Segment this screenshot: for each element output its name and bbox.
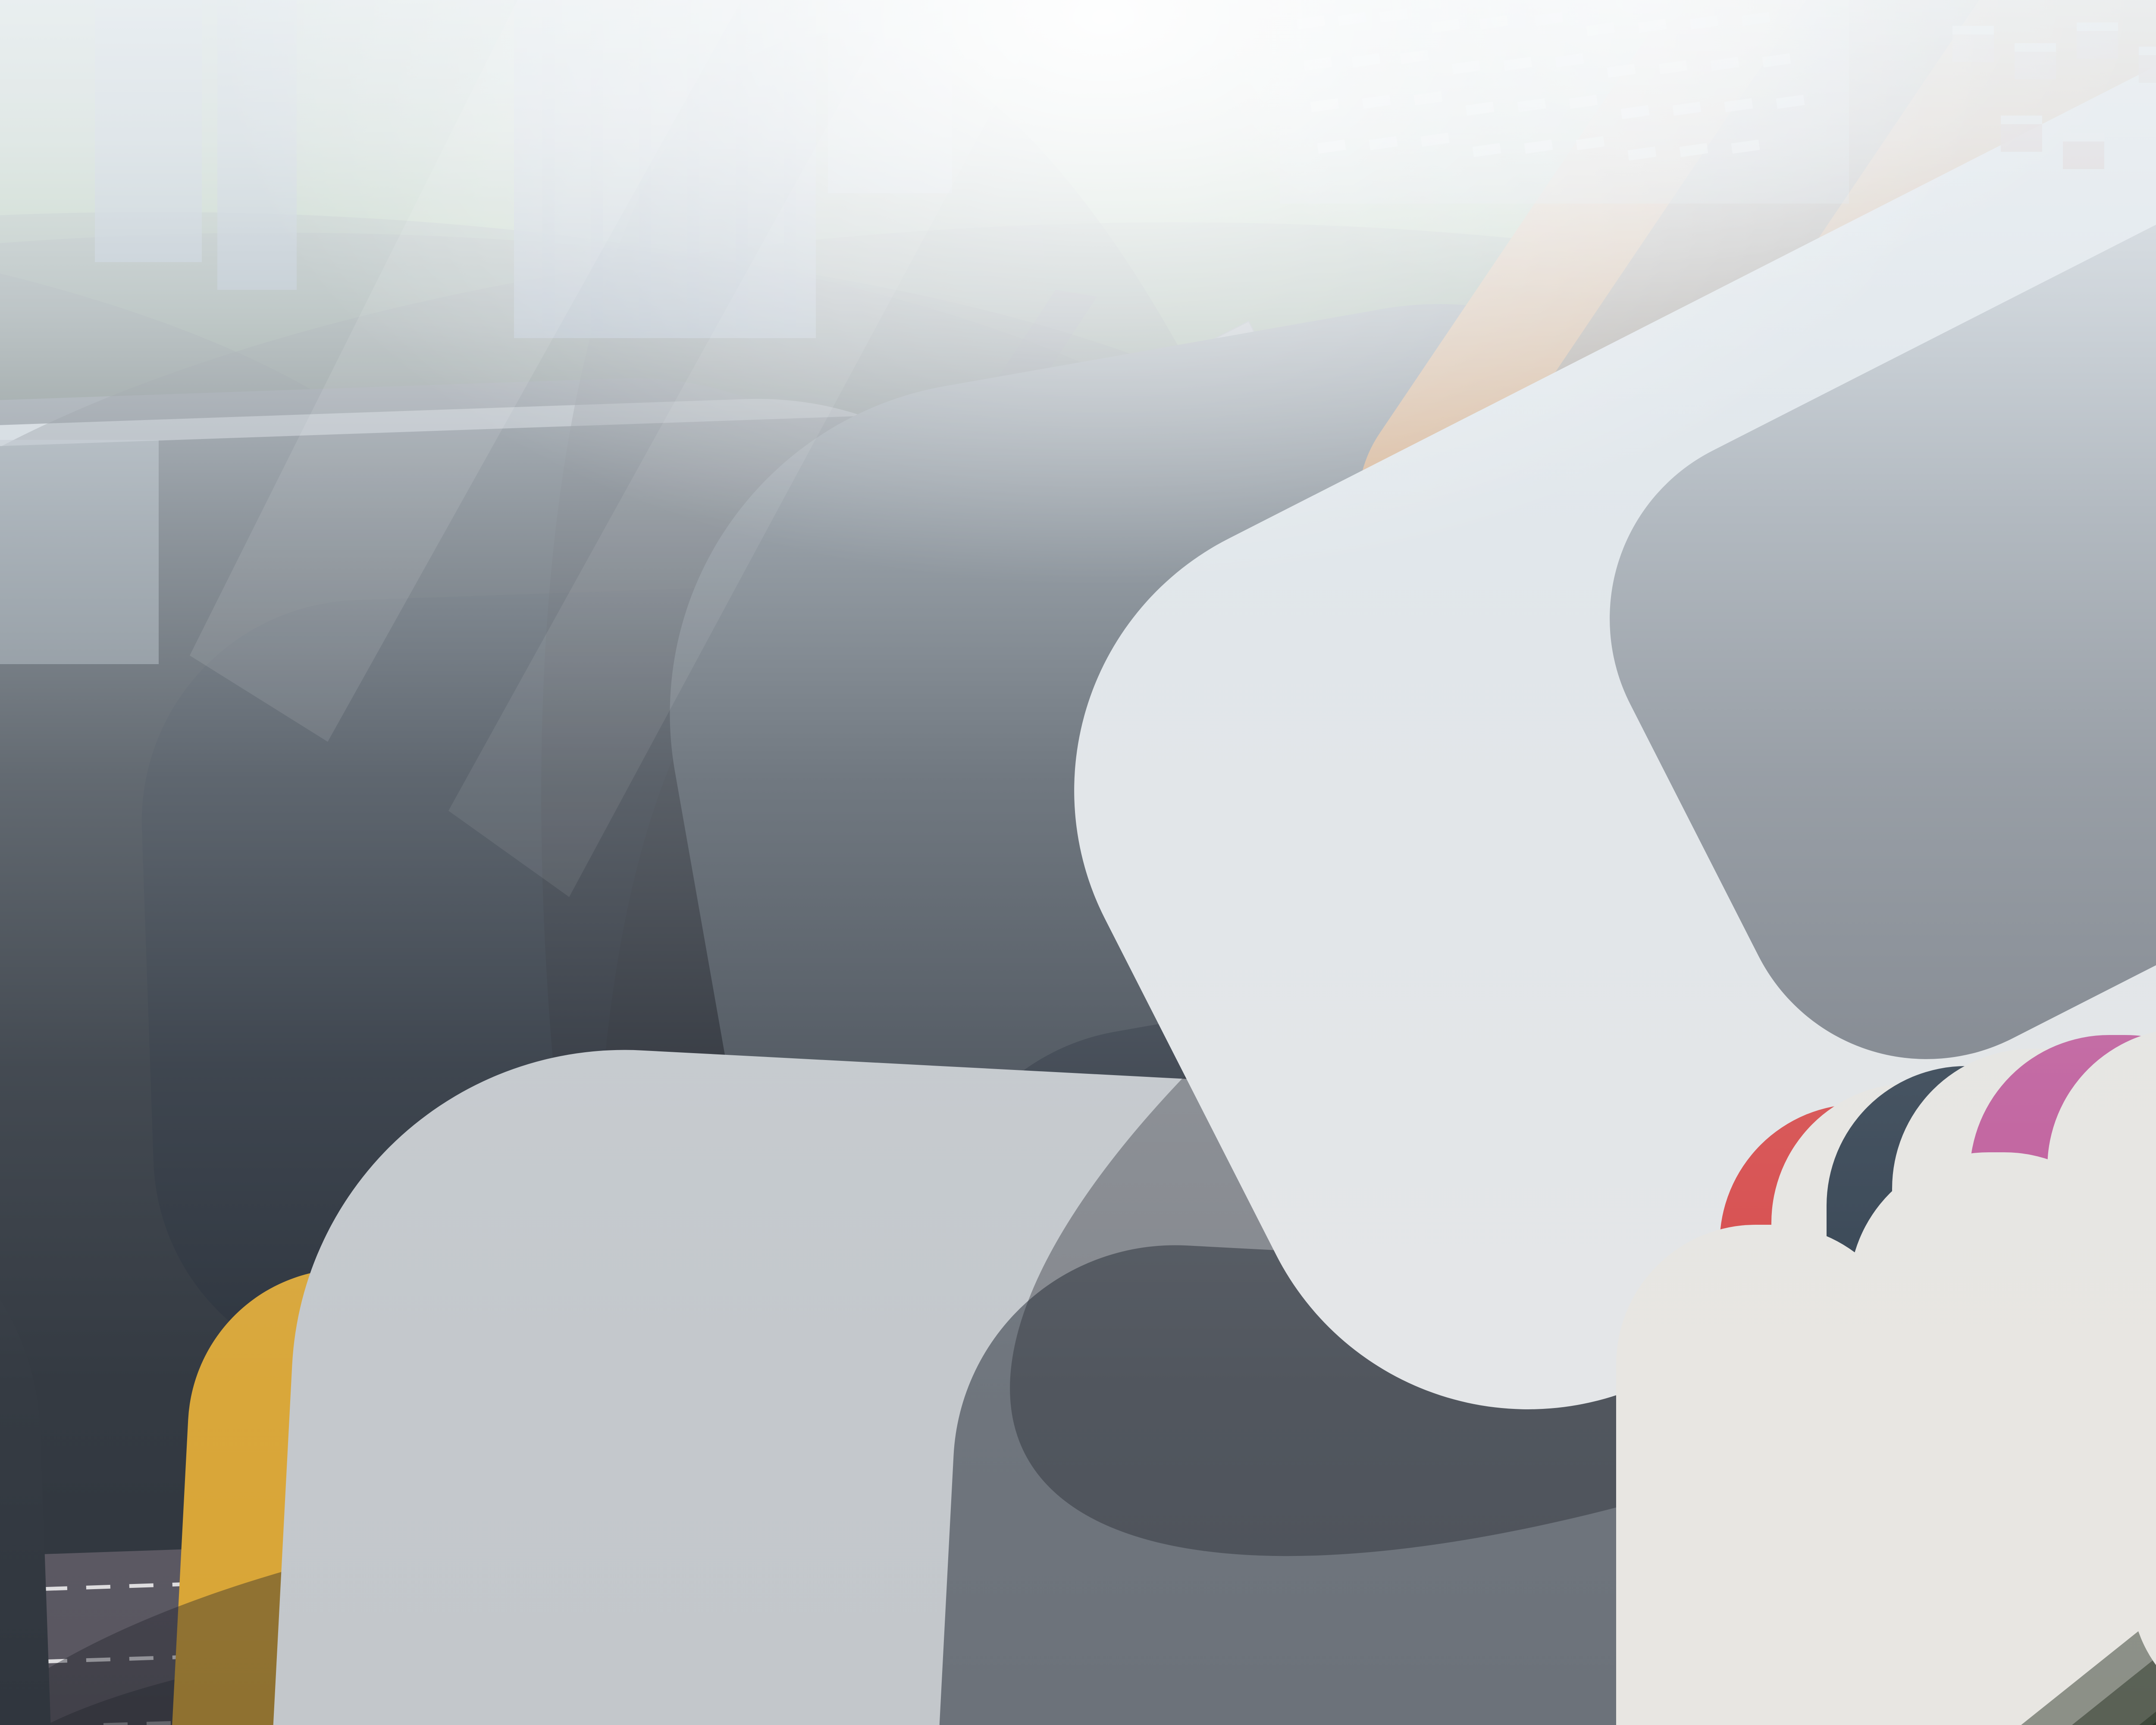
scene-svg: Bird's-eye architectural rendering of a … — [0, 0, 2156, 1725]
tower-silhouette — [95, 0, 202, 262]
aerial-campus-rendering: Bird's-eye architectural rendering of a … — [0, 0, 2156, 1725]
bus-depot — [1280, 0, 1849, 204]
tower-silhouette — [217, 0, 297, 290]
midrise-block — [0, 440, 159, 664]
